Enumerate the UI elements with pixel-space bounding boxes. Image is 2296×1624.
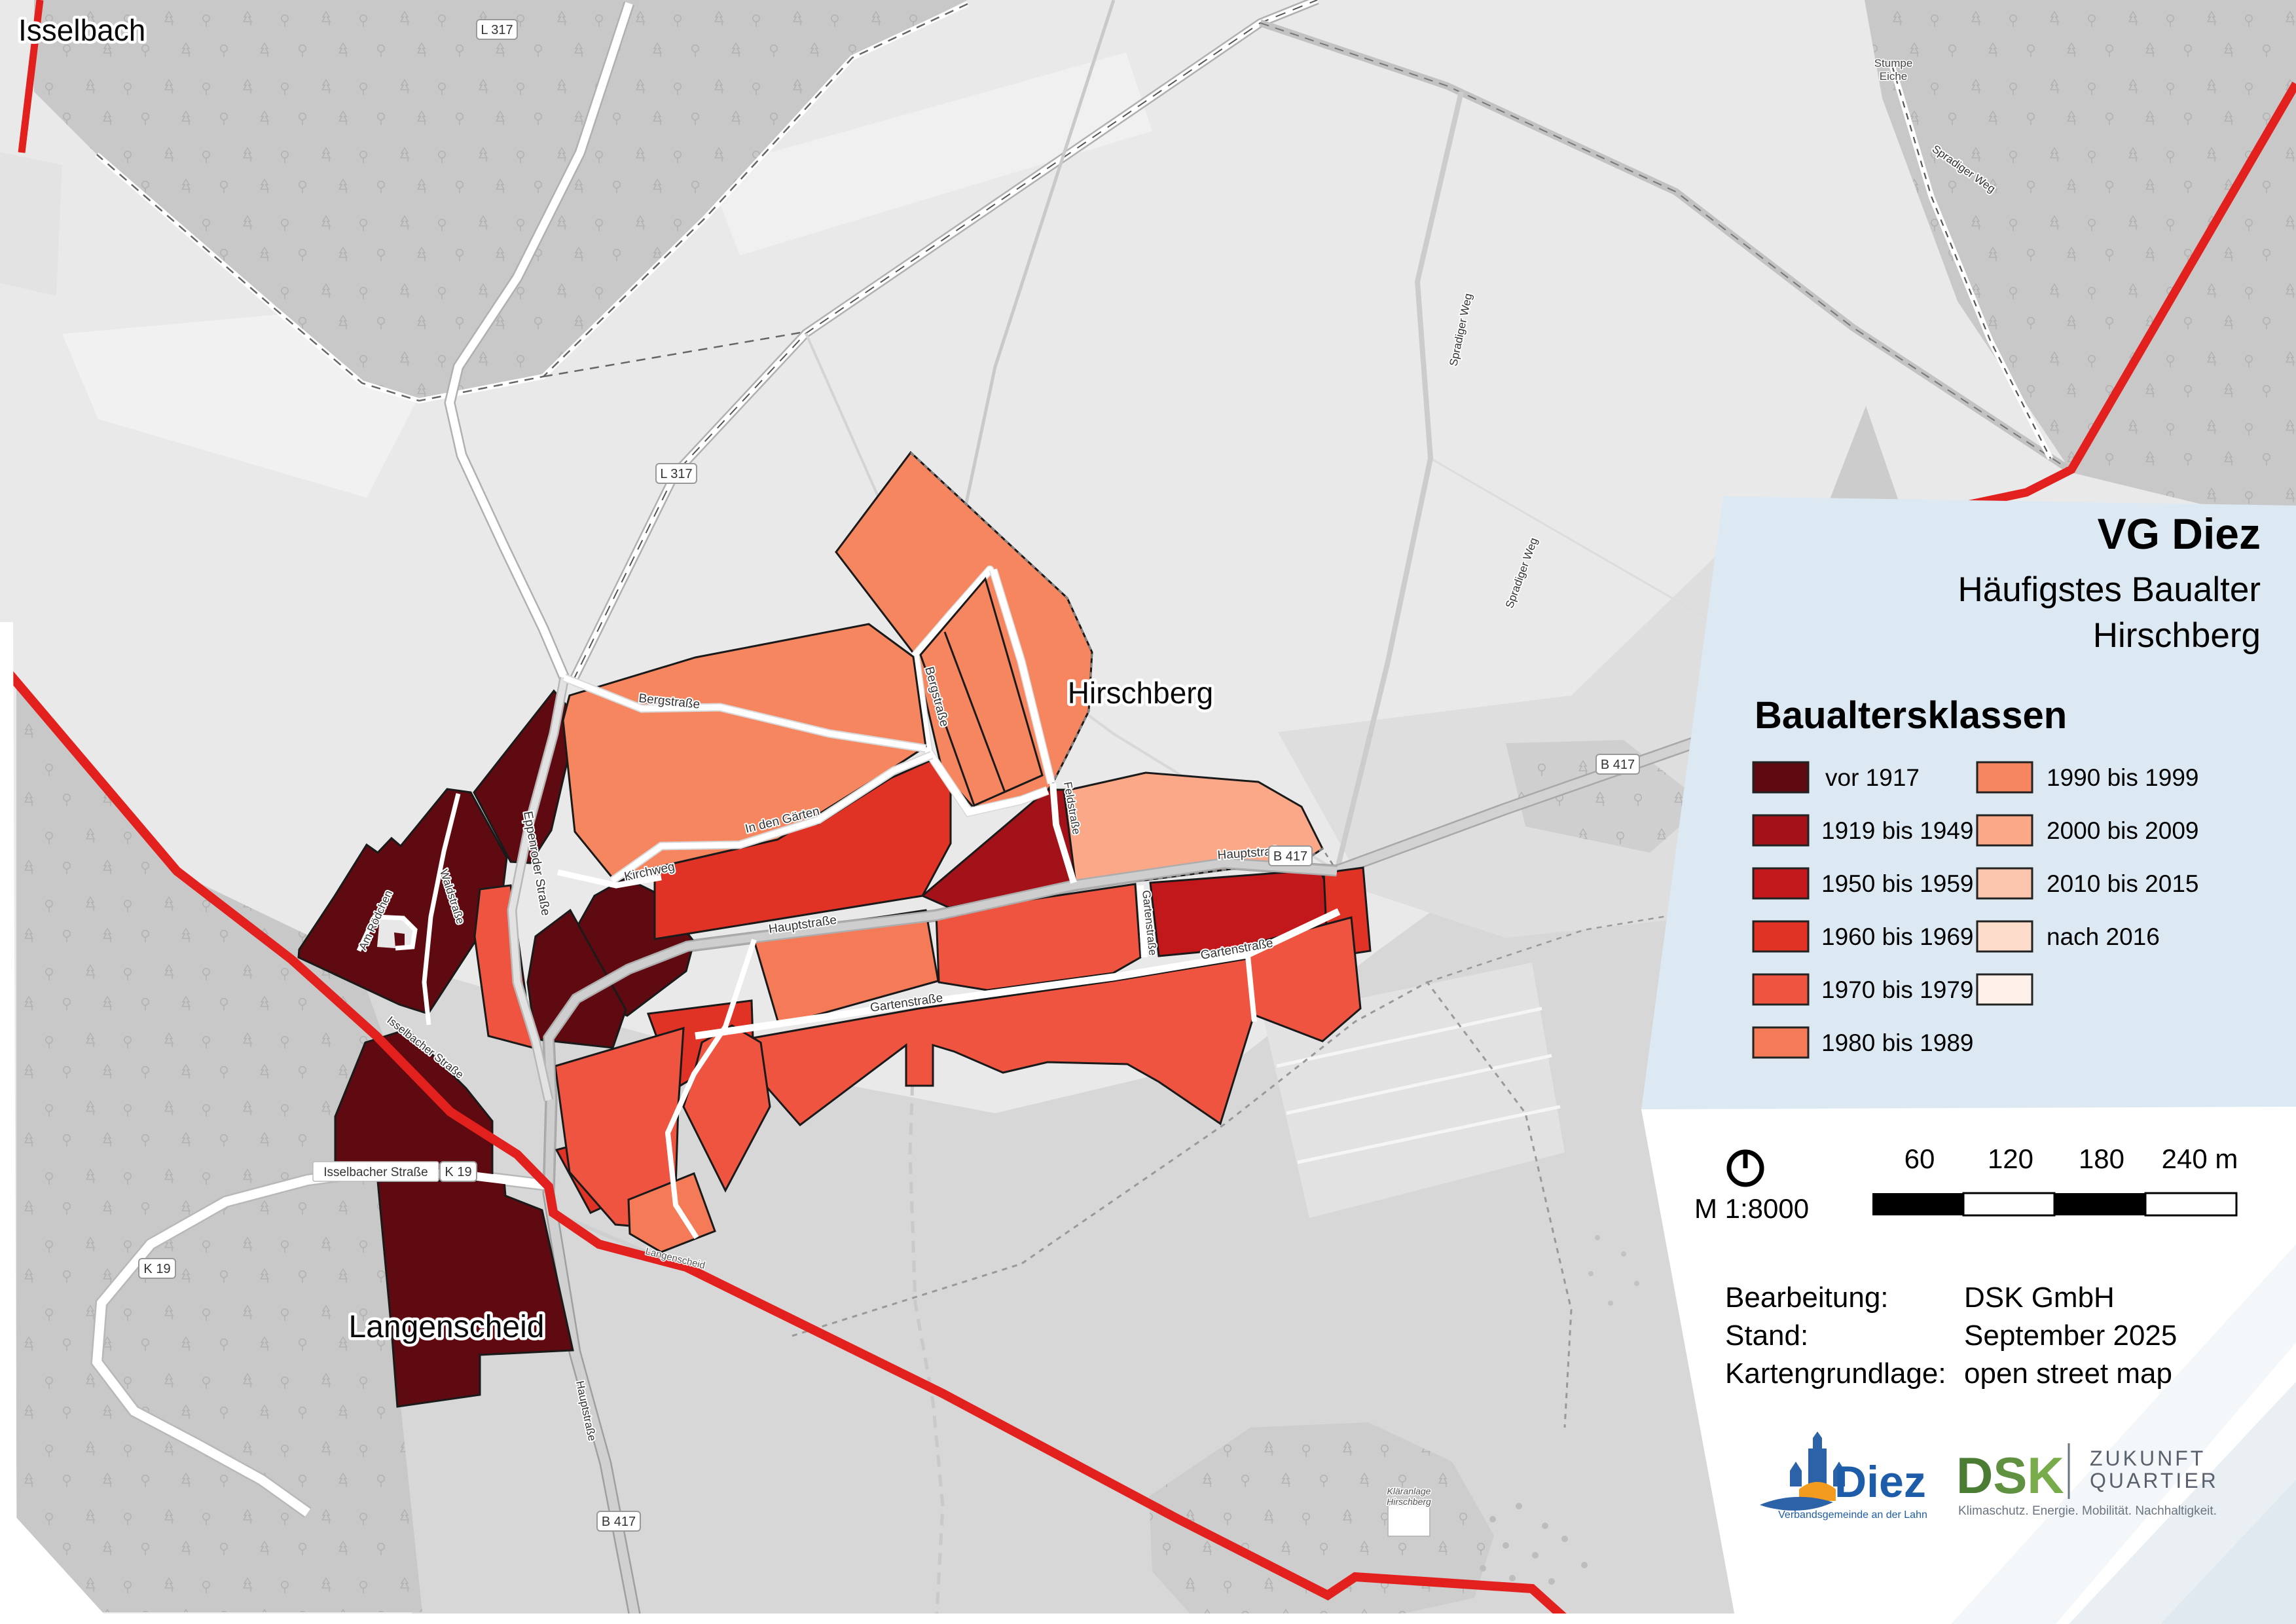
- svg-text:DSK GmbH: DSK GmbH: [1964, 1282, 2115, 1314]
- svg-text:QUARTIER: QUARTIER: [2090, 1469, 2219, 1492]
- svg-text:Klimaschutz. Energie. Mobilitä: Klimaschutz. Energie. Mobilität. Nachhal…: [1958, 1504, 2217, 1518]
- svg-text:60: 60: [1904, 1143, 1935, 1174]
- svg-text:Hirschberg: Hirschberg: [1068, 676, 1213, 710]
- svg-text:vor 1917: vor 1917: [1825, 764, 1920, 791]
- svg-text:VG Diez: VG Diez: [2098, 509, 2261, 558]
- svg-text:DSK: DSK: [1956, 1447, 2064, 1504]
- svg-text:1990 bis 1999: 1990 bis 1999: [2047, 764, 2198, 791]
- svg-text:Eiche: Eiche: [1880, 70, 1908, 83]
- svg-text:Stand:: Stand:: [1725, 1319, 1808, 1352]
- svg-text:K 19: K 19: [143, 1262, 170, 1276]
- svg-text:Baualtersklassen: Baualtersklassen: [1755, 694, 2067, 737]
- svg-text:1950 bis 1959: 1950 bis 1959: [1821, 870, 1973, 897]
- svg-text:Isselbacher Straße: Isselbacher Straße: [323, 1166, 428, 1179]
- svg-text:1980 bis 1989: 1980 bis 1989: [1821, 1029, 1973, 1056]
- svg-text:180: 180: [2079, 1143, 2124, 1174]
- svg-text:B 417: B 417: [1601, 758, 1635, 772]
- svg-text:Verbandsgemeinde an der Lahn: Verbandsgemeinde an der Lahn: [1778, 1509, 1927, 1521]
- svg-text:ZUKUNFT: ZUKUNFT: [2090, 1447, 2206, 1470]
- svg-text:Kläranlage: Kläranlage: [1387, 1486, 1431, 1496]
- svg-text:Bearbeitung:: Bearbeitung:: [1725, 1282, 1889, 1314]
- svg-text:Diez: Diez: [1834, 1457, 1926, 1507]
- svg-text:Langenscheid: Langenscheid: [349, 1310, 545, 1344]
- svg-text:1970 bis 1979: 1970 bis 1979: [1821, 976, 1973, 1003]
- svg-text:Stumpe: Stumpe: [1874, 57, 1913, 69]
- svg-text:M 1:8000: M 1:8000: [1694, 1193, 1809, 1224]
- svg-text:September 2025: September 2025: [1964, 1319, 2177, 1352]
- svg-text:Hirschberg: Hirschberg: [2093, 616, 2261, 655]
- svg-text:120: 120: [1988, 1143, 2033, 1174]
- svg-text:Isselbach: Isselbach: [18, 13, 145, 47]
- svg-text:Häufigstes Baualter: Häufigstes Baualter: [1958, 570, 2261, 609]
- svg-text:240 m: 240 m: [2162, 1143, 2238, 1174]
- svg-text:K 19: K 19: [445, 1165, 471, 1179]
- svg-text:L 317: L 317: [481, 23, 513, 37]
- svg-text:2010 bis 2015: 2010 bis 2015: [2047, 870, 2198, 897]
- svg-text:Kartengrundlage:: Kartengrundlage:: [1725, 1357, 1946, 1390]
- svg-text:L 317: L 317: [660, 467, 692, 481]
- svg-text:Hirschberg: Hirschberg: [1387, 1496, 1431, 1507]
- svg-text:1960 bis 1969: 1960 bis 1969: [1821, 923, 1973, 950]
- svg-text:B 417: B 417: [602, 1515, 636, 1529]
- svg-text:B 417: B 417: [1273, 849, 1307, 864]
- svg-text:2000 bis 2009: 2000 bis 2009: [2047, 817, 2198, 844]
- svg-text:1919 bis 1949: 1919 bis 1949: [1821, 817, 1973, 844]
- svg-text:nach 2016: nach 2016: [2047, 923, 2160, 950]
- svg-text:open street map: open street map: [1964, 1357, 2172, 1390]
